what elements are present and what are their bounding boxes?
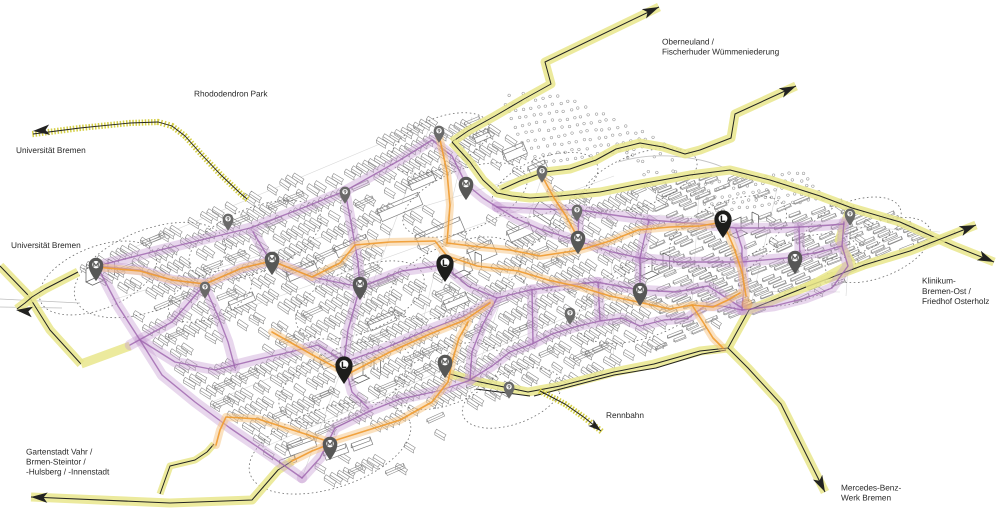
svg-text:Friedhof Osterholz: Friedhof Osterholz (922, 296, 989, 306)
svg-text:Mercedes-Benz-: Mercedes-Benz- (841, 483, 901, 493)
svg-text:Rhododendron Park: Rhododendron Park (194, 89, 268, 99)
svg-text:Brmen-Steintor /: Brmen-Steintor / (26, 457, 86, 467)
svg-text:Gartenstadt Vahr /: Gartenstadt Vahr / (26, 447, 93, 457)
svg-text:Werk Bremen: Werk Bremen (841, 493, 891, 503)
svg-text:Fischerhuder Wümmeniederung: Fischerhuder Wümmeniederung (662, 47, 780, 57)
svg-text:Oberneuland /: Oberneuland / (662, 37, 715, 47)
svg-text:Rennbahn: Rennbahn (606, 410, 644, 420)
svg-text:Universität Bremen: Universität Bremen (11, 240, 81, 250)
svg-text:Universität Bremen: Universität Bremen (16, 145, 86, 155)
svg-text:Bremen-Ost /: Bremen-Ost / (922, 286, 971, 296)
svg-text:-Hulsberg / -Innenstadt: -Hulsberg / -Innenstadt (26, 467, 110, 477)
svg-text:Klinikum-: Klinikum- (922, 276, 956, 286)
